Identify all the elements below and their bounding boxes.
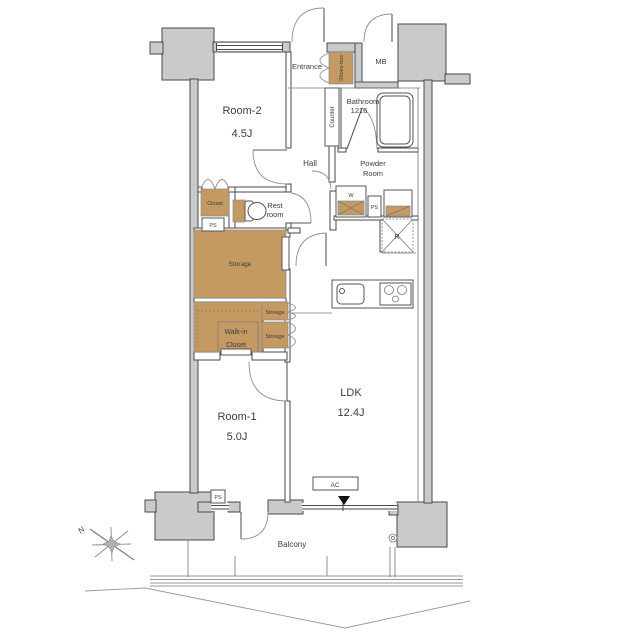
bathroom-name: Bathroom [347,97,380,106]
mb-label: MB [375,57,386,66]
compass: N [76,525,134,561]
room2-name: Room-2 [222,105,261,117]
storage-main-label: Storage [229,261,252,268]
closet-label: Closet [207,201,223,207]
ldk-name: LDK [340,387,362,399]
pillar-bottom-right [397,502,447,547]
kitchen-faucet [340,289,345,294]
rest-room-door [291,193,311,223]
storage-main-slider [282,237,289,270]
vanity-unit [384,190,412,217]
ldk-size: 12.4J [338,407,365,419]
ps-label-closet: PS [209,223,217,229]
storage-lower-label: Storage [265,334,284,340]
ps-label-room1: PS [214,495,222,501]
balcony-door [241,512,268,539]
ac-label: AC [330,482,339,489]
room1-door [249,362,287,401]
mb-door [364,14,392,42]
ldk-window [302,503,397,511]
ps-label-powder: PS [371,205,379,211]
bathtub [377,93,413,147]
north-label: N [76,525,86,536]
kitchen-counter [332,280,413,308]
drain-cap [389,534,397,542]
outer-wall-right [424,80,432,503]
refrigerator-label: R [394,234,399,241]
pillar-top-left [162,28,214,80]
kitchen-sink [337,284,364,304]
toilet [233,200,266,222]
ldk-door [296,233,326,266]
pillar-top-right [398,24,446,81]
pillar-bottom-left [155,492,214,540]
balcony-label: Balcony [278,540,306,549]
rest-room-line2: room [266,210,283,219]
walk-in-line1: Walk-in [224,329,247,336]
bathroom-size: 1216 [351,106,368,115]
washing-machine [336,186,366,217]
room1-size: 5.0J [227,431,248,443]
powder-room-door [312,171,331,189]
walk-in-closet-slider [221,349,251,355]
room2-door [253,150,287,184]
room2-size: 4.5J [232,128,253,140]
walk-in-line2: Closet [226,342,246,349]
counter-label: Counter [330,106,336,127]
site-boundary [85,588,470,628]
washer-label: W [348,193,354,199]
powder-room-line1: Powder [360,159,386,168]
shoes-box-label: Shoes-box [339,55,345,82]
hall-label: Hall [303,159,317,168]
room2-window [216,43,283,51]
closet-bifold-door [201,180,229,190]
room1-window [211,503,229,511]
floor-plan: N Room-2 4.5J Entrance Shoes-box MB Bath… [0,0,617,640]
entrance-door [292,8,324,42]
rest-room-line1: Rest [267,201,283,210]
storage-upper-label: Storage [265,310,284,316]
powder-room-line2: Room [363,169,383,178]
entrance-label: Entrance [292,62,322,71]
room1-name: Room-1 [217,411,256,423]
balcony-railing [150,576,463,586]
